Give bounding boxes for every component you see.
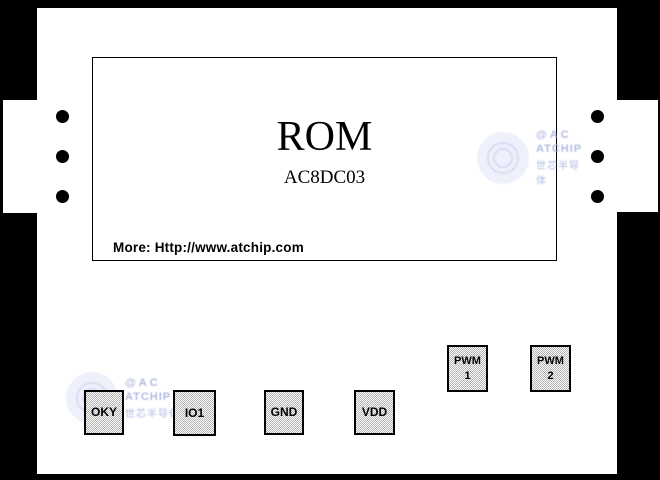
atchip-watermark: @AC ATCHIP 世芯半导体: [477, 129, 582, 187]
board-tab-left: [3, 100, 43, 213]
pad-oky: OKY: [84, 390, 124, 435]
pad-label: PWM: [537, 354, 564, 369]
pad-label: IO1: [185, 407, 204, 420]
pad-label: OKY: [91, 406, 117, 419]
pad-label: PWM: [454, 354, 481, 369]
pin-hole-dot: [591, 190, 604, 203]
pad-label-line2: 1: [464, 369, 470, 384]
pin-hole-dot: [56, 150, 69, 163]
pin-hole-dot: [56, 190, 69, 203]
board-tab-right: [617, 100, 658, 212]
watermark-line1: @AC: [536, 129, 582, 141]
watermark-line3: 世芯半导体: [536, 157, 582, 187]
pad-label: GND: [271, 406, 298, 419]
pad-io1: IO1: [173, 390, 216, 436]
pin-hole-dot: [591, 150, 604, 163]
watermark-line3: 世芯半导体: [125, 405, 180, 420]
atchip-logo-icon: [477, 132, 529, 184]
pad-label-line2: 2: [547, 369, 553, 384]
pad-pwm1: PWM 1: [447, 345, 488, 392]
chip-diagram: ROM AC8DC03 More: Http://www.atchip.com …: [0, 0, 660, 480]
pad-label: VDD: [362, 406, 387, 419]
pin-hole-dot: [591, 110, 604, 123]
pin-hole-dot: [56, 110, 69, 123]
pad-pwm2: PWM 2: [530, 345, 571, 392]
watermark-line2: ATCHIP: [536, 143, 582, 155]
pad-vdd: VDD: [354, 390, 395, 435]
watermark-line2: ATCHIP: [125, 391, 180, 403]
more-info-url: More: Http://www.atchip.com: [113, 240, 304, 255]
rom-outline-box: ROM AC8DC03 More: Http://www.atchip.com …: [92, 57, 557, 261]
watermark-line1: @AC: [125, 377, 180, 389]
pad-gnd: GND: [264, 390, 304, 435]
